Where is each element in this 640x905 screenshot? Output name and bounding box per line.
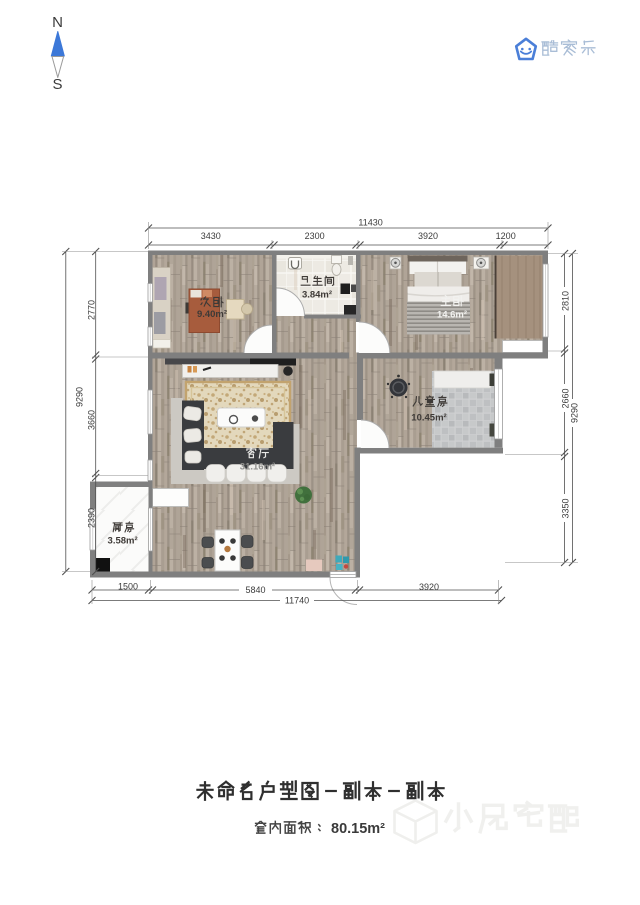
svg-text:N: N <box>52 14 63 31</box>
svg-text:9290: 9290 <box>74 387 84 407</box>
svg-text:3.84m²: 3.84m² <box>302 290 332 301</box>
svg-text:2300: 2300 <box>305 231 325 241</box>
svg-text:3.58m²: 3.58m² <box>108 536 138 547</box>
svg-text:11430: 11430 <box>358 218 382 228</box>
svg-text:31.16m²: 31.16m² <box>240 462 275 473</box>
svg-text:2770: 2770 <box>87 300 97 320</box>
svg-text:9290: 9290 <box>570 403 580 423</box>
svg-text:S: S <box>52 76 62 93</box>
svg-text:3430: 3430 <box>201 231 221 241</box>
svg-text:1500: 1500 <box>118 582 138 592</box>
svg-text:3920: 3920 <box>418 231 438 241</box>
svg-text:3920: 3920 <box>419 582 439 592</box>
svg-text:3350: 3350 <box>561 498 571 518</box>
svg-text:2810: 2810 <box>561 291 571 311</box>
svg-text:3660: 3660 <box>87 410 97 430</box>
svg-text:5840: 5840 <box>245 585 265 595</box>
svg-text:1200: 1200 <box>496 231 516 241</box>
svg-text:10.45m²: 10.45m² <box>411 413 446 424</box>
svg-text:11740: 11740 <box>285 596 309 606</box>
svg-text:80.15m²: 80.15m² <box>331 821 385 837</box>
svg-text:2390: 2390 <box>87 508 97 528</box>
svg-text:9.40m²: 9.40m² <box>197 309 227 320</box>
svg-text:14.6m²: 14.6m² <box>437 310 467 321</box>
